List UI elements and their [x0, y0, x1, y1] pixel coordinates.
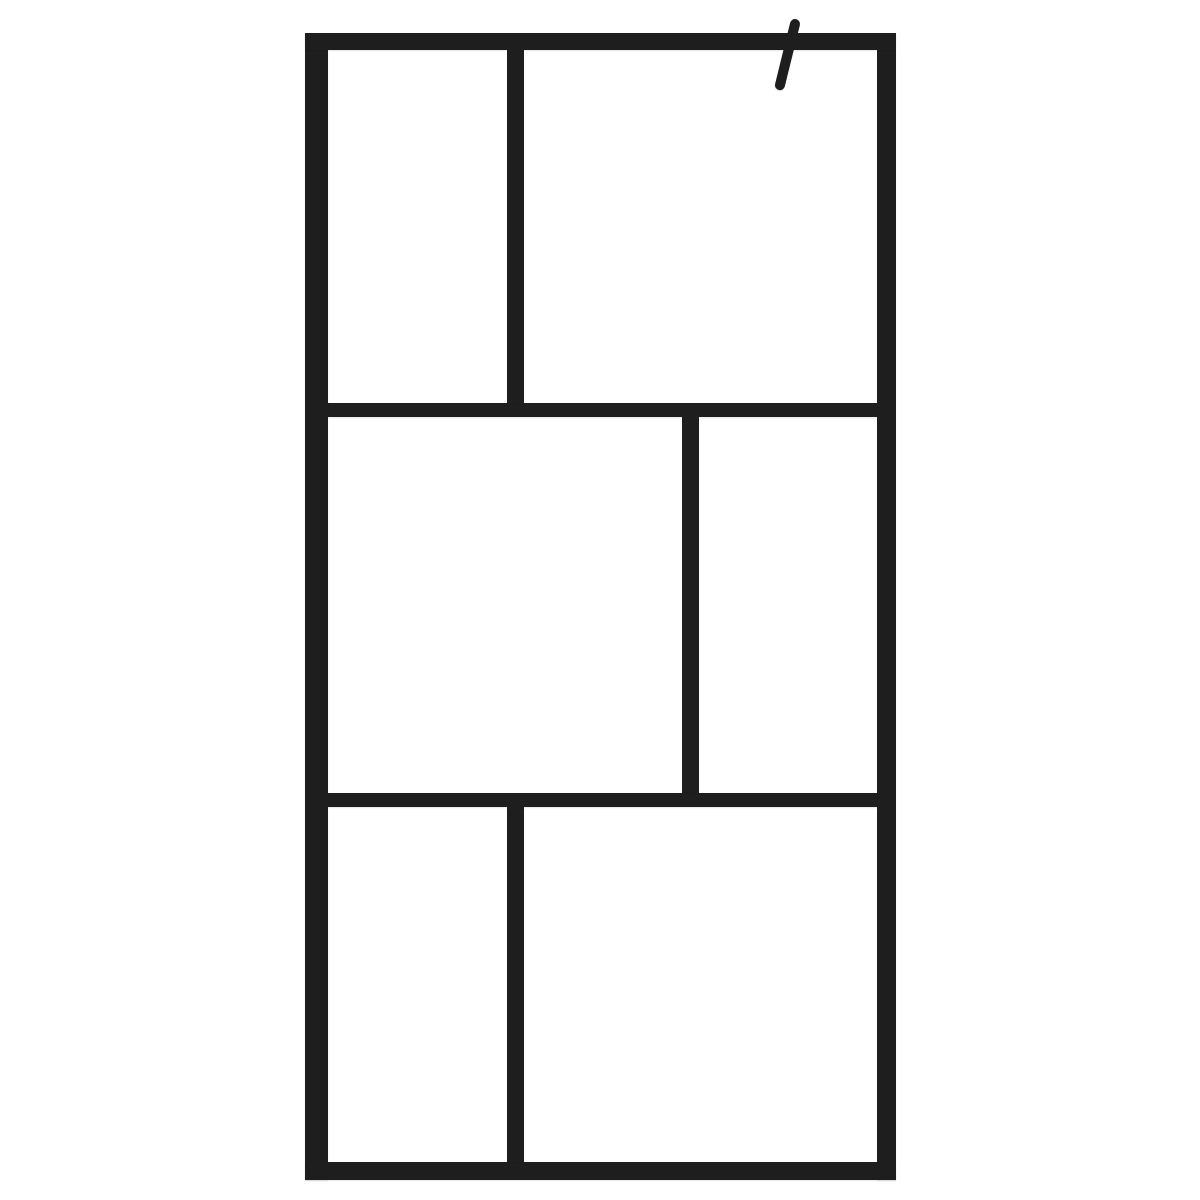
glass-pane-bottom-right	[524, 807, 877, 1162]
product-image	[0, 0, 1200, 1200]
middle-rail-upper	[328, 403, 877, 417]
glass-pane-top-right	[524, 50, 877, 403]
glass-pane-middle-left	[328, 417, 682, 793]
mullion-top-row	[507, 50, 524, 403]
mullion-bottom-row	[507, 807, 524, 1162]
glass-pane-bottom-left	[328, 807, 507, 1162]
frame-top-rail	[305, 33, 896, 50]
frame-left-stile	[305, 33, 328, 1180]
glass-pane-middle-right	[699, 417, 877, 793]
mullion-middle-row	[682, 417, 699, 793]
glass-pane-top-left	[328, 50, 507, 403]
frame-right-stile	[877, 33, 896, 1180]
shower-screen	[0, 0, 1200, 1200]
middle-rail-lower	[328, 793, 877, 807]
frame-bottom-rail	[305, 1162, 896, 1180]
